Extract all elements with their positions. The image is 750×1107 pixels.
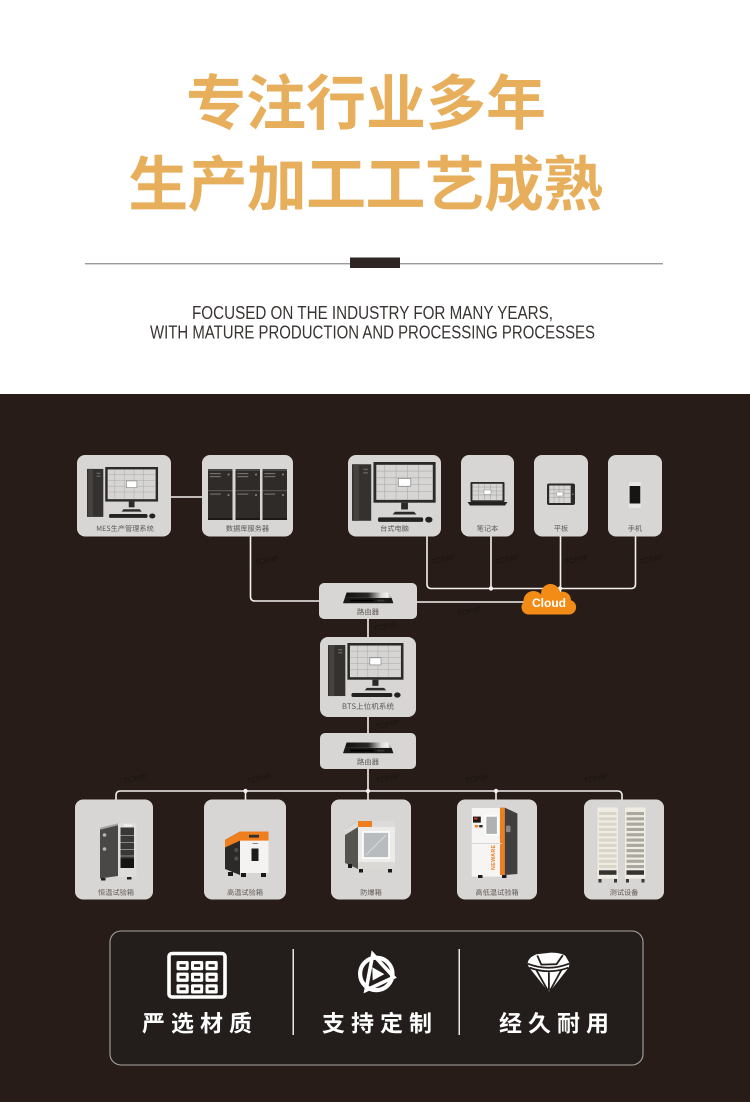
svg-text:FOCUSED ON THE INDUSTRY FOR MA: FOCUSED ON THE INDUSTRY FOR MANY YEARS,	[192, 303, 553, 323]
svg-text:NEWARE: NEWARE	[491, 844, 497, 870]
svg-text:Cloud: Cloud	[532, 596, 566, 610]
svg-text:WITH MATURE PRODUCTION AND PRO: WITH MATURE PRODUCTION AND PROCESSING PR…	[150, 323, 595, 343]
